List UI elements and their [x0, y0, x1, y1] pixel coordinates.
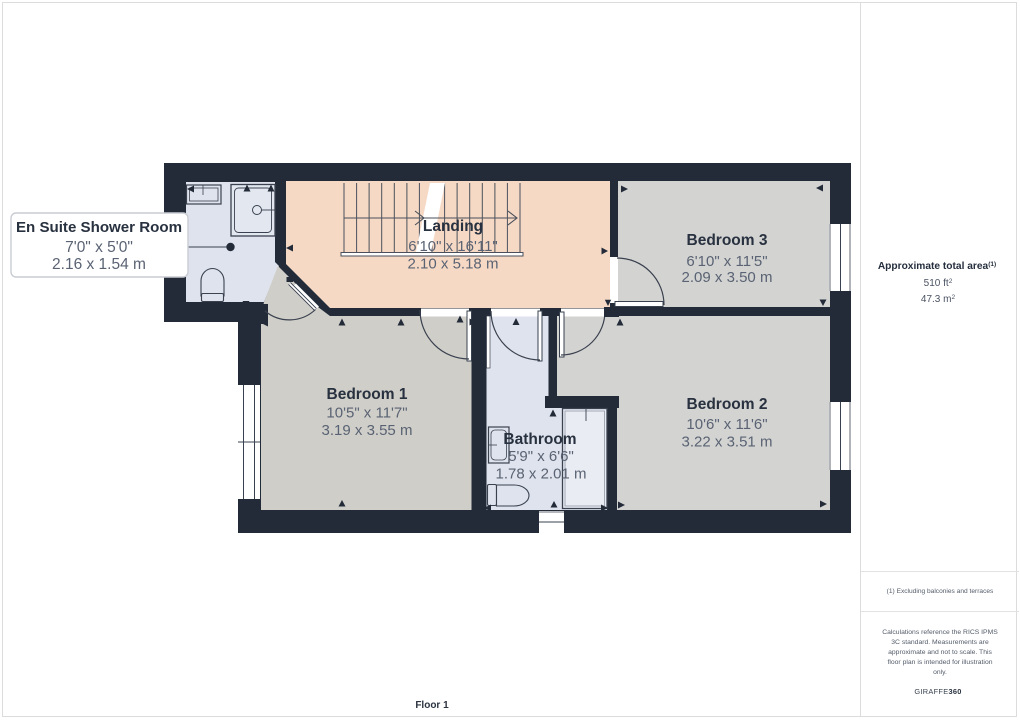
svg-text:Approximate total area(1): Approximate total area(1): [878, 261, 996, 273]
svg-text:6'10" x 16'11": 6'10" x 16'11": [408, 238, 498, 255]
svg-text:10'5" x 11'7": 10'5" x 11'7": [326, 405, 407, 422]
svg-text:only.: only.: [933, 669, 947, 676]
svg-text:3C standard. Measurements are: 3C standard. Measurements are: [891, 639, 989, 646]
svg-text:Floor 1: Floor 1: [415, 700, 449, 711]
svg-text:3.19 x 3.55 m: 3.19 x 3.55 m: [322, 422, 413, 439]
svg-text:Calculations reference the RIC: Calculations reference the RICS IPMS: [882, 629, 998, 636]
svg-text:6'10" x 11'5": 6'10" x 11'5": [686, 253, 767, 270]
svg-text:Bathroom: Bathroom: [503, 431, 576, 448]
svg-text:(1) Excluding balconies and te: (1) Excluding balconies and terraces: [887, 588, 994, 595]
svg-text:5'9" x 6'6": 5'9" x 6'6": [508, 448, 574, 465]
svg-text:510 ft2: 510 ft2: [924, 278, 953, 290]
svg-text:GIRAFFE360: GIRAFFE360: [914, 687, 961, 696]
svg-text:Bedroom 2: Bedroom 2: [687, 396, 768, 413]
svg-text:Bedroom 3: Bedroom 3: [687, 232, 768, 249]
svg-text:10'6" x 11'6": 10'6" x 11'6": [686, 416, 767, 433]
svg-text:approximate and not to scale.: approximate and not to scale. This: [888, 649, 992, 656]
svg-text:47.3 m2: 47.3 m2: [921, 294, 956, 306]
svg-text:2.16 x 1.54 m: 2.16 x 1.54 m: [52, 256, 146, 273]
svg-text:1.78 x 2.01 m: 1.78 x 2.01 m: [496, 466, 587, 483]
svg-text:floor plan is intended for ill: floor plan is intended for illustration: [887, 659, 992, 666]
svg-text:7'0" x 5'0": 7'0" x 5'0": [65, 239, 133, 256]
svg-text:2.09 x 3.50 m: 2.09 x 3.50 m: [682, 269, 773, 286]
svg-text:Bedroom 1: Bedroom 1: [327, 386, 408, 403]
svg-text:3.22 x 3.51 m: 3.22 x 3.51 m: [682, 434, 773, 451]
svg-text:2.10 x 5.18 m: 2.10 x 5.18 m: [408, 256, 499, 273]
svg-text:Landing: Landing: [423, 218, 483, 235]
svg-text:En Suite Shower Room: En Suite Shower Room: [16, 219, 182, 236]
